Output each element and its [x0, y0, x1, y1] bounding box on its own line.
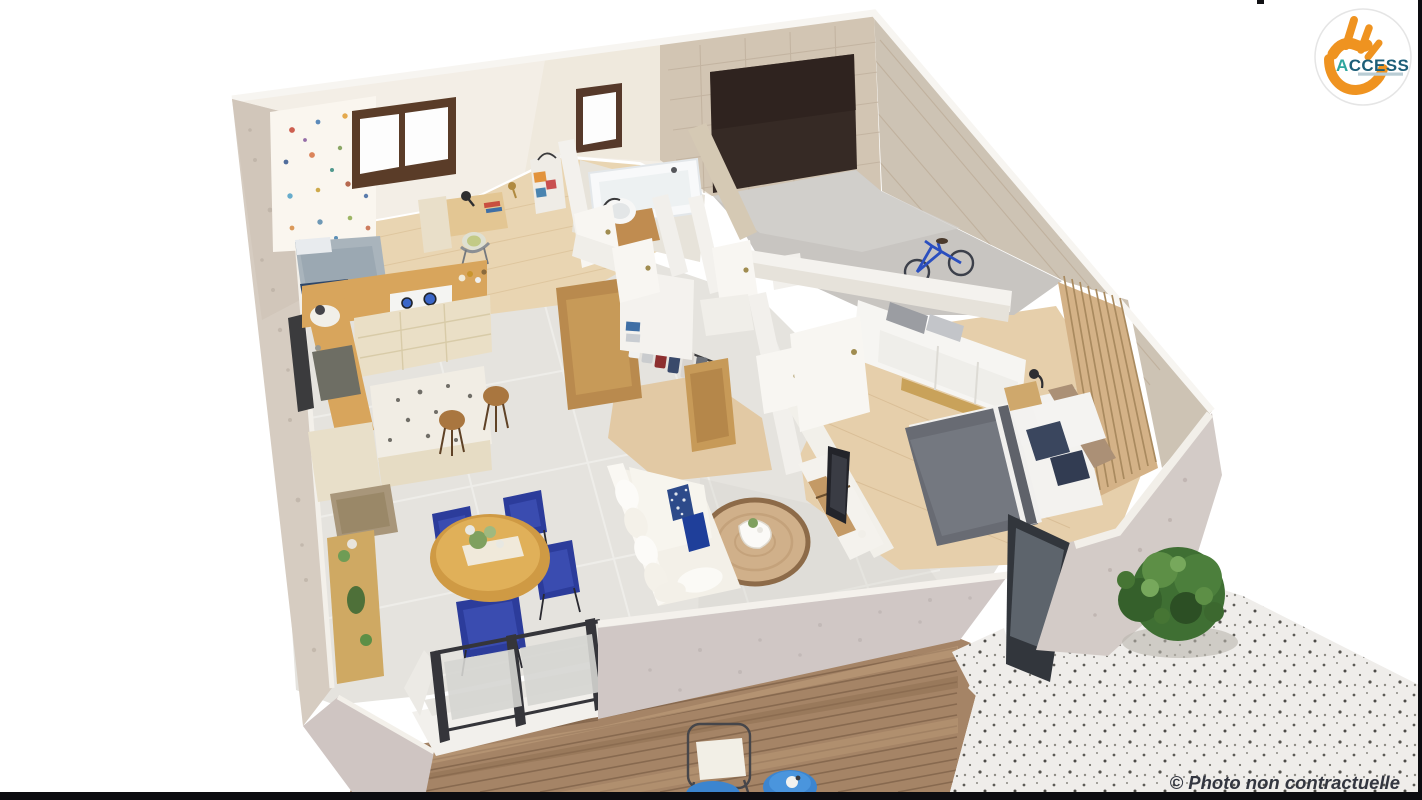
- svg-text:ACCESS: ACCESS: [1336, 56, 1409, 75]
- svg-text:© Photo non contractuelle: © Photo non contractuelle: [1169, 772, 1400, 793]
